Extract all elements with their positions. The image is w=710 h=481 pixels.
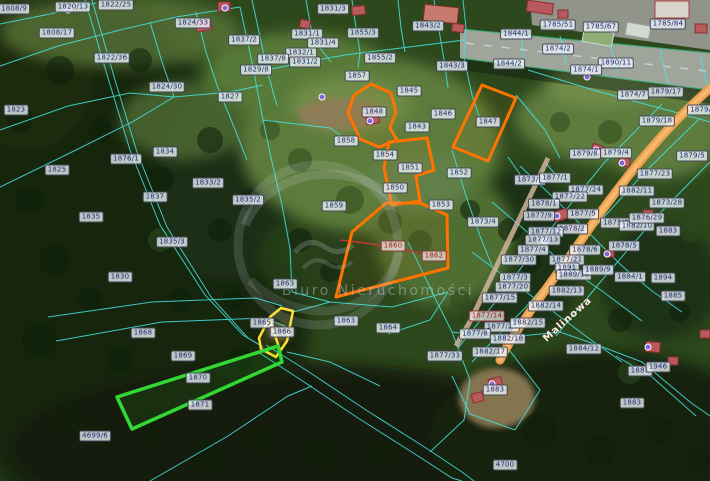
map-canvas[interactable]: Biuro Nieruchomości Malinowa 1808/91820/… xyxy=(0,0,710,481)
watermark-text: Biuro Nieruchomości xyxy=(282,283,474,299)
map-graphics: Biuro Nieruchomości Malinowa xyxy=(0,0,710,481)
